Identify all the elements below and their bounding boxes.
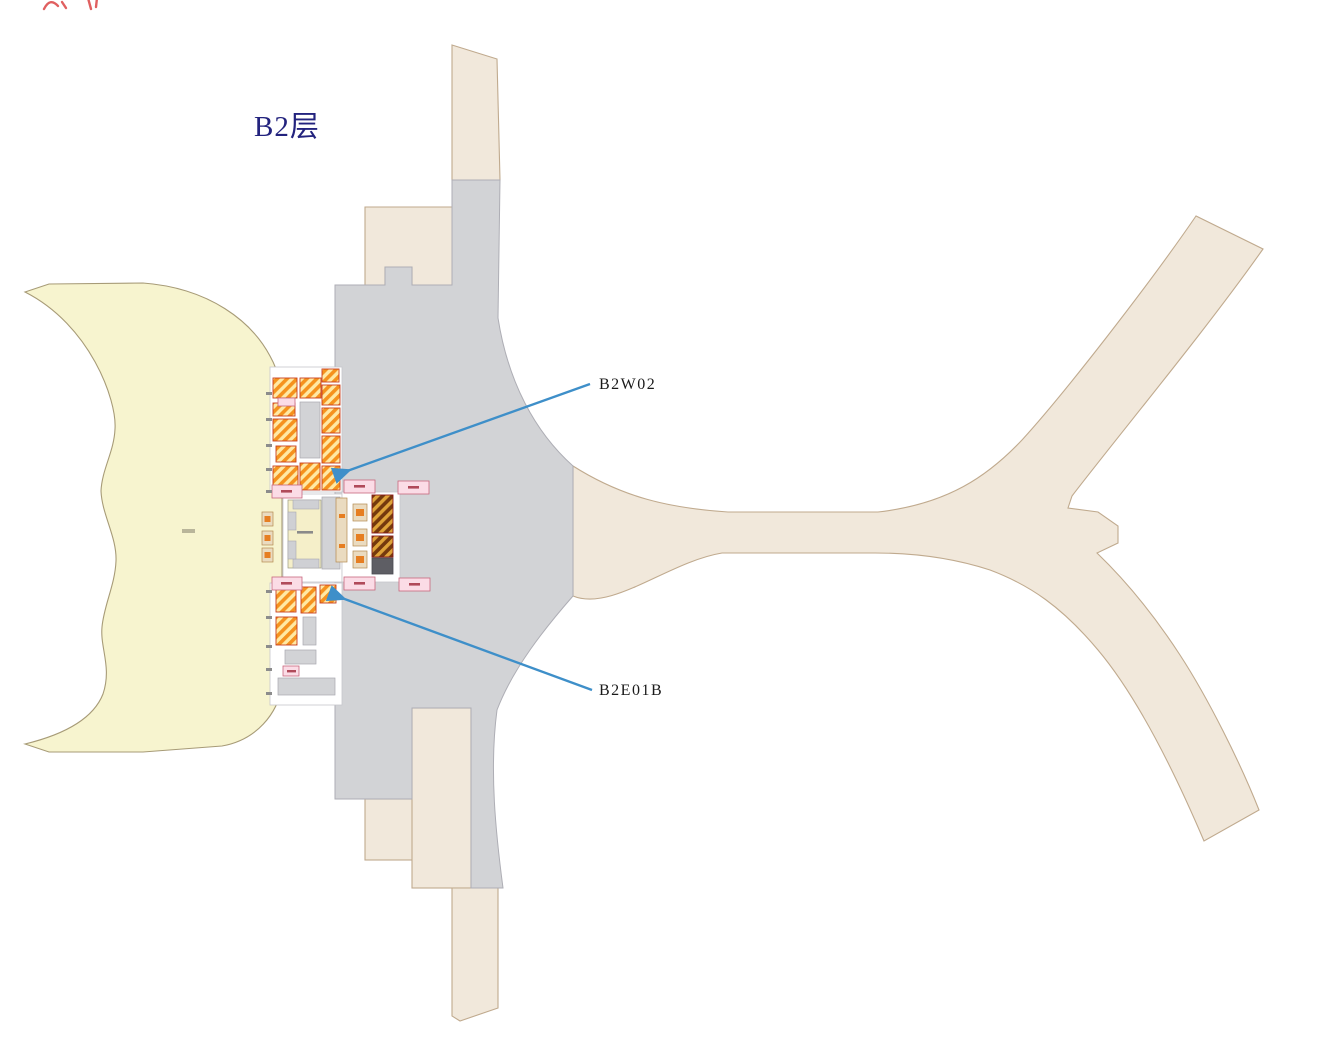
shop-block [273,419,297,441]
kiosk [353,551,367,568]
west-satellite-hall [25,283,282,752]
gray-room [303,617,316,645]
checkin-island [288,500,321,568]
shop-block [300,378,321,398]
service-strip [336,498,347,562]
callout-label-b2e01b: B2E01B [599,682,663,699]
shop-block [276,589,296,612]
shop-block [322,436,340,463]
shop-block [322,385,340,405]
shop-block [276,446,296,462]
shop-block [273,378,297,398]
south-road-strip-lower [452,888,498,1021]
island-label-mark [297,531,313,534]
south-road-strip-upper [412,708,471,888]
trumpet-road [573,216,1263,841]
kiosk [262,512,273,526]
floor-plan-canvas: B2W02 B2E01B B2层 [0,0,1331,1045]
gray-room [300,402,320,458]
north-road-strip [452,45,500,180]
kiosk [262,548,273,562]
floor-plan-page: B2W02 B2E01B B2层 [0,0,1331,1045]
kiosk [353,504,367,521]
gray-room [278,678,335,695]
kiosk [262,531,273,545]
kiosk [353,529,367,546]
floor-title: B2层 [254,111,320,143]
dark-hatch-block [372,536,393,557]
shop-block [276,617,297,645]
shop-block [322,408,340,433]
shop-block [301,587,316,613]
red-annotation-fragment [44,0,97,9]
gray-room [285,650,316,664]
dark-gray-block [372,558,393,574]
shop-block [300,463,320,490]
shop-block [322,369,339,382]
pink-room [278,398,295,406]
shop-block [322,466,340,490]
callout-label-b2w02: B2W02 [599,376,656,393]
hall-center-mark [182,529,195,533]
dark-hatch-block [372,495,393,533]
